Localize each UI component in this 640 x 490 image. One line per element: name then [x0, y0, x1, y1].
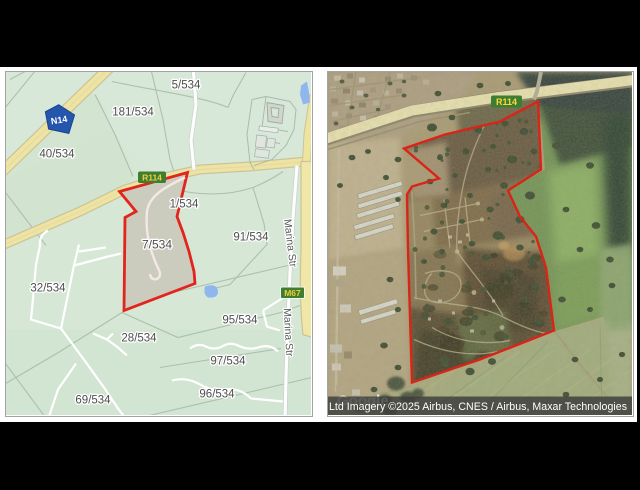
svg-text:95/534: 95/534 [222, 315, 258, 327]
svg-text:M67: M67 [284, 288, 301, 298]
svg-text:69/534: 69/534 [75, 395, 111, 407]
svg-text:5/534: 5/534 [171, 80, 200, 92]
svg-text:Marina Str: Marina Str [280, 308, 295, 357]
svg-text:Ltd Imagery ©2025 Airbus, CNES: Ltd Imagery ©2025 Airbus, CNES / Airbus,… [329, 401, 627, 413]
svg-text:40/534: 40/534 [39, 149, 75, 161]
svg-text:91/534: 91/534 [233, 232, 269, 244]
svg-text:R114: R114 [495, 97, 516, 107]
svg-text:7/534: 7/534 [141, 238, 171, 252]
svg-text:96/534: 96/534 [199, 389, 235, 401]
svg-text:1/534: 1/534 [169, 199, 198, 211]
svg-text:28/534: 28/534 [121, 333, 157, 345]
svg-text:R114: R114 [142, 173, 162, 183]
svg-text:181/534: 181/534 [112, 107, 154, 119]
svg-text:97/534: 97/534 [210, 356, 246, 368]
svg-text:32/534: 32/534 [30, 283, 66, 295]
